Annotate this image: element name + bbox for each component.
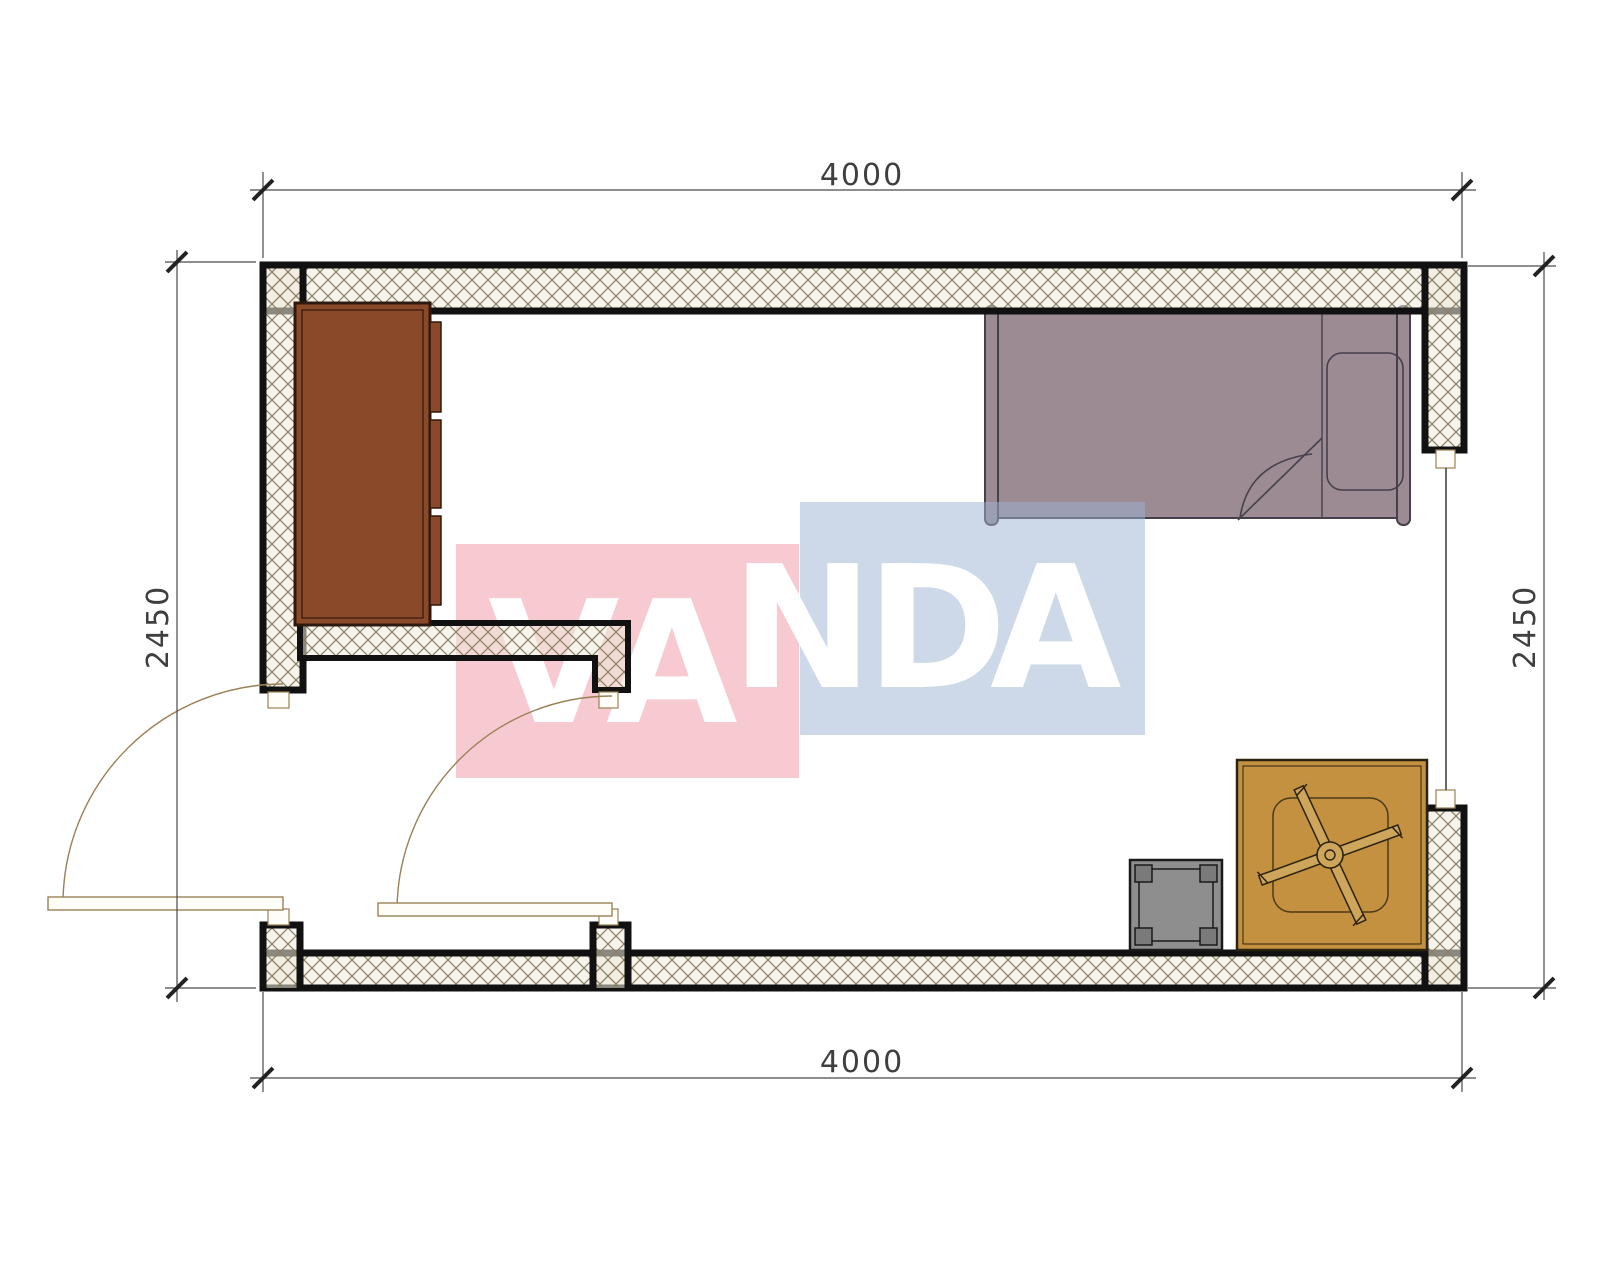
- dim-value-bottom: 4000: [820, 1045, 904, 1080]
- wardrobe-dresser: [295, 303, 441, 625]
- bed-mattress: [997, 309, 1398, 518]
- dimension-right: 2450: [1468, 252, 1556, 1000]
- right-wall-upper: [1425, 265, 1464, 450]
- bottom-wall-stub-middle: [593, 925, 628, 988]
- door1-swing-arc: [63, 684, 283, 904]
- wardrobe-body: [295, 303, 430, 625]
- stool-leg-br: [1200, 928, 1217, 945]
- window-jamb-bottom: [1436, 790, 1455, 808]
- window-jamb-top: [1436, 450, 1455, 468]
- dim-value-left: 2450: [141, 585, 176, 669]
- bed-footboard: [985, 306, 998, 525]
- floor-plan-canvas: V A N D A: [0, 0, 1600, 1280]
- bottom-wall-stub-left: [263, 925, 300, 988]
- dimension-bottom: 4000: [250, 992, 1476, 1092]
- wardrobe-door-front-2: [430, 420, 441, 508]
- top-wall: [263, 265, 1464, 311]
- watermark-letter-n: N: [731, 530, 873, 728]
- stool: [1130, 860, 1222, 950]
- door2-leaf: [378, 903, 612, 916]
- window: [1436, 450, 1455, 808]
- dimension-top: 4000: [250, 158, 1476, 258]
- door2-jamb-top: [599, 692, 618, 708]
- fan-table: [1237, 760, 1427, 950]
- dimension-left: 2450: [141, 250, 256, 1002]
- door1-jamb-bottom: [268, 909, 289, 925]
- door1-jamb-top: [268, 692, 289, 708]
- watermark-letter-a2: A: [990, 530, 1122, 728]
- stool-leg-tr: [1200, 865, 1217, 882]
- wardrobe-door-front-1: [430, 322, 441, 412]
- right-wall-lower: [1425, 808, 1464, 988]
- door1-leaf: [48, 897, 283, 910]
- stool-leg-bl: [1135, 928, 1152, 945]
- dim-value-right: 2450: [1508, 585, 1543, 669]
- dim-value-top: 4000: [820, 158, 904, 193]
- wardrobe-door-front-3: [430, 516, 441, 605]
- single-bed: [985, 306, 1410, 525]
- stool-leg-tl: [1135, 865, 1152, 882]
- watermark-letter-d: D: [866, 530, 1007, 728]
- fan-hub-inner: [1325, 850, 1335, 860]
- bottom-wall: [263, 953, 1464, 988]
